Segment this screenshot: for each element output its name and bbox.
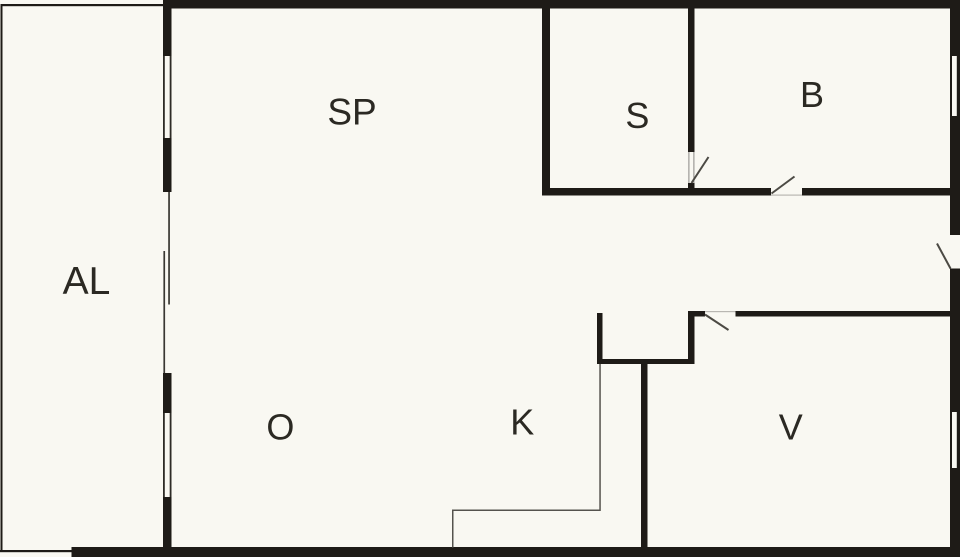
svg-text:B: B [800, 74, 824, 115]
svg-text:O: O [266, 407, 294, 448]
svg-text:AL: AL [63, 260, 111, 303]
svg-text:SP: SP [327, 92, 376, 133]
svg-text:V: V [779, 407, 803, 448]
svg-text:K: K [510, 402, 534, 443]
svg-text:S: S [625, 95, 649, 136]
